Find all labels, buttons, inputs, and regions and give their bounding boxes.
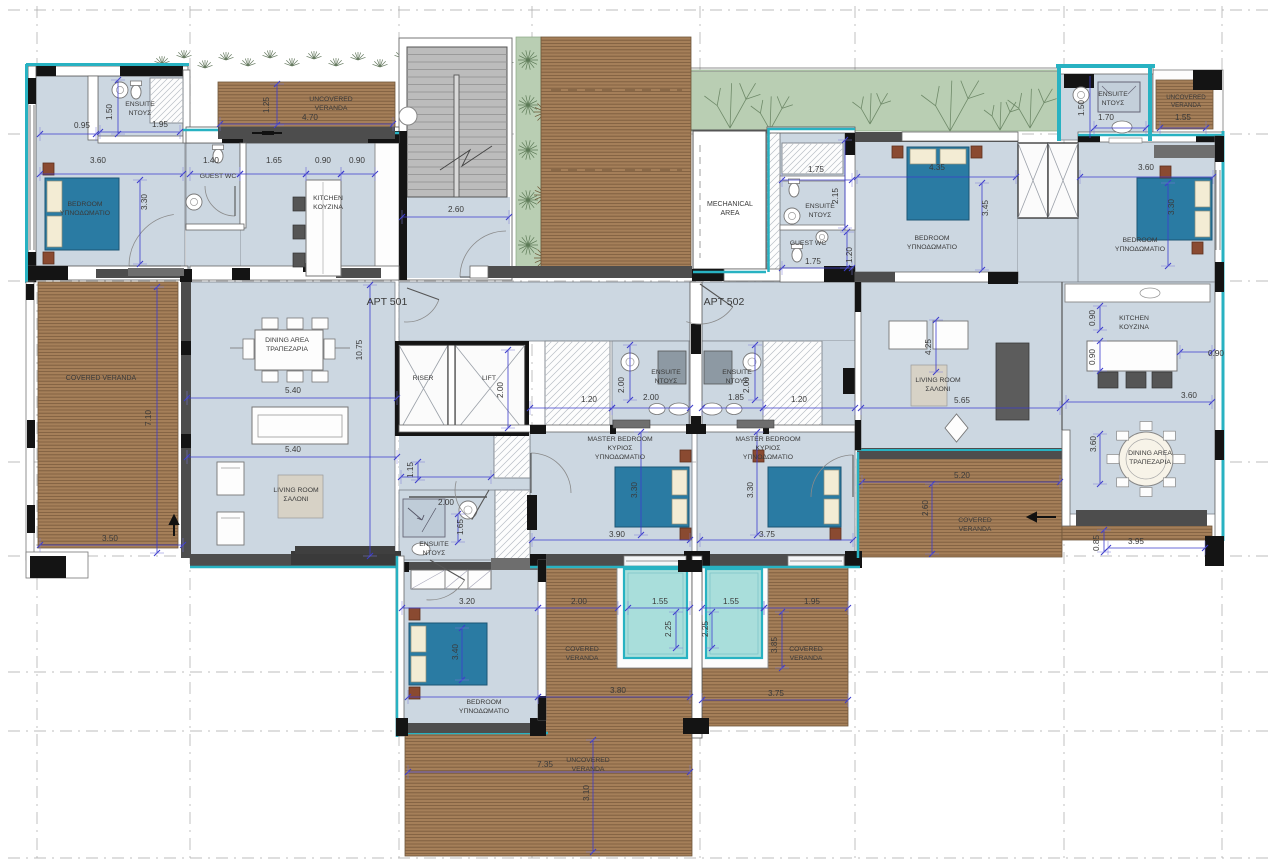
svg-text:1.40: 1.40	[203, 156, 219, 165]
svg-text:2.00: 2.00	[496, 382, 505, 398]
svg-text:ΚΥΡΙΟΣ: ΚΥΡΙΟΣ	[608, 445, 633, 452]
svg-text:3.90: 3.90	[609, 530, 625, 539]
svg-text:1.75: 1.75	[808, 165, 824, 174]
svg-text:10.75: 10.75	[355, 339, 364, 360]
svg-text:DINING AREA: DINING AREA	[1128, 450, 1172, 457]
svg-text:ΤΡΑΠΕΖΑΡΙΑ: ΤΡΑΠΕΖΑΡΙΑ	[266, 346, 308, 353]
svg-text:2.60: 2.60	[448, 205, 464, 214]
svg-text:0.90: 0.90	[1088, 349, 1097, 365]
svg-text:2.25: 2.25	[701, 621, 710, 637]
svg-text:ΥΠΝΟΔΩΜΑΤΙΟ: ΥΠΝΟΔΩΜΑΤΙΟ	[459, 708, 509, 715]
svg-text:ΝΤΟΥΣ: ΝΤΟΥΣ	[129, 110, 152, 117]
svg-text:ΚΥΡΙΟΣ: ΚΥΡΙΟΣ	[756, 445, 781, 452]
svg-text:BEDROOM: BEDROOM	[67, 201, 102, 208]
svg-text:ΥΠΝΟΔΩΜΑΤΙΟ: ΥΠΝΟΔΩΜΑΤΙΟ	[743, 454, 793, 461]
svg-text:2.00: 2.00	[438, 498, 454, 507]
svg-text:3.45: 3.45	[981, 200, 990, 216]
svg-text:RISER: RISER	[413, 375, 434, 382]
svg-text:ΣΑΛΟΝΙ: ΣΑΛΟΝΙ	[925, 386, 950, 393]
svg-text:COVERED: COVERED	[789, 646, 823, 653]
svg-text:COVERED: COVERED	[958, 517, 992, 524]
svg-text:ΤΡΑΠΕΖΑΡΙΑ: ΤΡΑΠΕΖΑΡΙΑ	[1129, 459, 1171, 466]
svg-text:2.60: 2.60	[921, 500, 930, 516]
svg-text:LIVING ROOM: LIVING ROOM	[915, 377, 961, 384]
svg-text:1.50: 1.50	[1077, 100, 1086, 116]
svg-text:1.20: 1.20	[581, 395, 597, 404]
svg-text:UNCOVERED: UNCOVERED	[1166, 94, 1206, 101]
svg-text:7.10: 7.10	[144, 410, 153, 426]
svg-text:3.60: 3.60	[1138, 163, 1154, 172]
svg-text:VERANDA: VERANDA	[566, 655, 599, 662]
svg-text:AREA: AREA	[720, 210, 739, 217]
svg-text:VERANDA: VERANDA	[790, 655, 823, 662]
svg-text:0.90: 0.90	[315, 156, 331, 165]
svg-text:UNCOVERED: UNCOVERED	[566, 757, 610, 764]
svg-text:APT 501: APT 501	[367, 296, 408, 308]
svg-text:3.80: 3.80	[610, 686, 626, 695]
svg-text:2.00: 2.00	[571, 597, 587, 606]
svg-text:GUEST WC: GUEST WC	[790, 240, 827, 247]
svg-text:1.55: 1.55	[1175, 113, 1191, 122]
svg-text:0.90: 0.90	[1088, 310, 1097, 326]
svg-text:1.75: 1.75	[805, 257, 821, 266]
svg-text:ENSUITE: ENSUITE	[722, 369, 752, 376]
svg-text:5.65: 5.65	[954, 396, 970, 405]
svg-text:1.55: 1.55	[723, 597, 739, 606]
svg-text:5.40: 5.40	[285, 386, 301, 395]
svg-text:KOYZINA: KOYZINA	[1119, 324, 1149, 331]
svg-text:KOYZINA: KOYZINA	[313, 204, 343, 211]
svg-text:1.50: 1.50	[105, 104, 114, 120]
svg-text:DINING AREA: DINING AREA	[265, 337, 309, 344]
svg-text:4.35: 4.35	[929, 163, 945, 172]
svg-text:3.60: 3.60	[1181, 391, 1197, 400]
svg-text:ENSUITE: ENSUITE	[651, 369, 681, 376]
svg-text:ΝΤΟΥΣ: ΝΤΟΥΣ	[1102, 100, 1125, 107]
svg-text:VERANDA: VERANDA	[315, 105, 348, 112]
svg-text:ΝΤΟΥΣ: ΝΤΟΥΣ	[655, 378, 678, 385]
svg-text:3.95: 3.95	[1128, 537, 1144, 546]
svg-text:3.60: 3.60	[1089, 436, 1098, 452]
svg-text:BEDROOM: BEDROOM	[466, 699, 501, 706]
svg-text:3.75: 3.75	[768, 689, 784, 698]
svg-text:3.10: 3.10	[582, 785, 591, 801]
svg-text:LIFT: LIFT	[482, 375, 496, 382]
svg-text:3.30: 3.30	[140, 194, 149, 210]
svg-text:3.40: 3.40	[451, 644, 460, 660]
svg-text:3.20: 3.20	[459, 597, 475, 606]
svg-text:1.20: 1.20	[791, 395, 807, 404]
svg-text:COVERED VERANDA: COVERED VERANDA	[66, 375, 137, 382]
svg-text:UNCOVERED: UNCOVERED	[309, 96, 353, 103]
svg-text:1.85: 1.85	[728, 393, 744, 402]
svg-text:1.15: 1.15	[406, 462, 415, 478]
svg-text:0.85: 0.85	[1092, 535, 1101, 551]
svg-text:BEDROOM: BEDROOM	[1122, 237, 1157, 244]
svg-text:3.30: 3.30	[1167, 199, 1176, 215]
svg-text:0.95: 0.95	[74, 121, 90, 130]
svg-text:ΥΠΝΟΔΩΜΑΤΙΟ: ΥΠΝΟΔΩΜΑΤΙΟ	[595, 454, 645, 461]
svg-text:ΣΑΛΟΝΙ: ΣΑΛΟΝΙ	[283, 496, 308, 503]
svg-text:ΥΠΝΟΔΩΜΑΤΙΟ: ΥΠΝΟΔΩΜΑΤΙΟ	[907, 244, 957, 251]
svg-text:MASTER BEDROOM: MASTER BEDROOM	[735, 436, 801, 443]
svg-text:VERANDA: VERANDA	[572, 766, 605, 773]
svg-text:LIVING ROOM: LIVING ROOM	[273, 487, 319, 494]
svg-text:BEDROOM: BEDROOM	[914, 235, 949, 242]
svg-text:1.95: 1.95	[804, 597, 820, 606]
svg-text:1.70: 1.70	[1098, 113, 1114, 122]
svg-text:3.50: 3.50	[102, 534, 118, 543]
svg-text:2.15: 2.15	[831, 188, 840, 204]
svg-text:KITCHEN: KITCHEN	[1119, 315, 1149, 322]
svg-text:VERANDA: VERANDA	[1171, 102, 1202, 109]
svg-text:ΝΤΟΥΣ: ΝΤΟΥΣ	[809, 212, 832, 219]
svg-text:1.65: 1.65	[456, 519, 465, 535]
svg-text:ENSUITE: ENSUITE	[805, 203, 835, 210]
svg-text:ΝΤΟΥΣ: ΝΤΟΥΣ	[726, 378, 749, 385]
svg-text:2.00: 2.00	[617, 377, 626, 393]
svg-text:1.25: 1.25	[262, 97, 271, 113]
svg-text:4.25: 4.25	[924, 339, 933, 355]
svg-text:ENSUITE: ENSUITE	[419, 541, 449, 548]
svg-text:3.30: 3.30	[630, 482, 639, 498]
svg-text:MECHANICAL: MECHANICAL	[707, 201, 753, 208]
svg-text:ΥΠΝΟΔΩΜΑΤΙΟ: ΥΠΝΟΔΩΜΑΤΙΟ	[1115, 246, 1165, 253]
svg-text:2.25: 2.25	[664, 621, 673, 637]
svg-text:0.90: 0.90	[349, 156, 365, 165]
svg-text:7.35: 7.35	[537, 760, 553, 769]
svg-text:GUEST WC: GUEST WC	[200, 173, 237, 180]
svg-text:VERANDA: VERANDA	[959, 526, 992, 533]
svg-text:5.20: 5.20	[954, 471, 970, 480]
svg-text:ENSUITE: ENSUITE	[125, 101, 155, 108]
svg-text:ΝΤΟΥΣ: ΝΤΟΥΣ	[423, 550, 446, 557]
svg-text:5.40: 5.40	[285, 445, 301, 454]
svg-text:ENSUITE: ENSUITE	[1098, 91, 1128, 98]
svg-text:ΥΠΝΟΔΩΜΑΤΙΟ: ΥΠΝΟΔΩΜΑΤΙΟ	[60, 210, 110, 217]
svg-text:4.70: 4.70	[302, 113, 318, 122]
svg-text:3.85: 3.85	[770, 637, 779, 653]
svg-text:3.30: 3.30	[746, 482, 755, 498]
svg-text:APT 502: APT 502	[704, 296, 745, 308]
svg-text:0.90: 0.90	[1208, 349, 1224, 358]
svg-text:1.65: 1.65	[266, 156, 282, 165]
svg-text:1.20: 1.20	[845, 247, 854, 263]
svg-text:1.95: 1.95	[152, 120, 168, 129]
svg-text:3.75: 3.75	[759, 530, 775, 539]
svg-text:MASTER BEDROOM: MASTER BEDROOM	[587, 436, 653, 443]
svg-text:3.60: 3.60	[90, 156, 106, 165]
svg-text:1.55: 1.55	[652, 597, 668, 606]
svg-text:COVERED: COVERED	[565, 646, 599, 653]
svg-text:KITCHEN: KITCHEN	[313, 195, 343, 202]
svg-text:2.00: 2.00	[643, 393, 659, 402]
